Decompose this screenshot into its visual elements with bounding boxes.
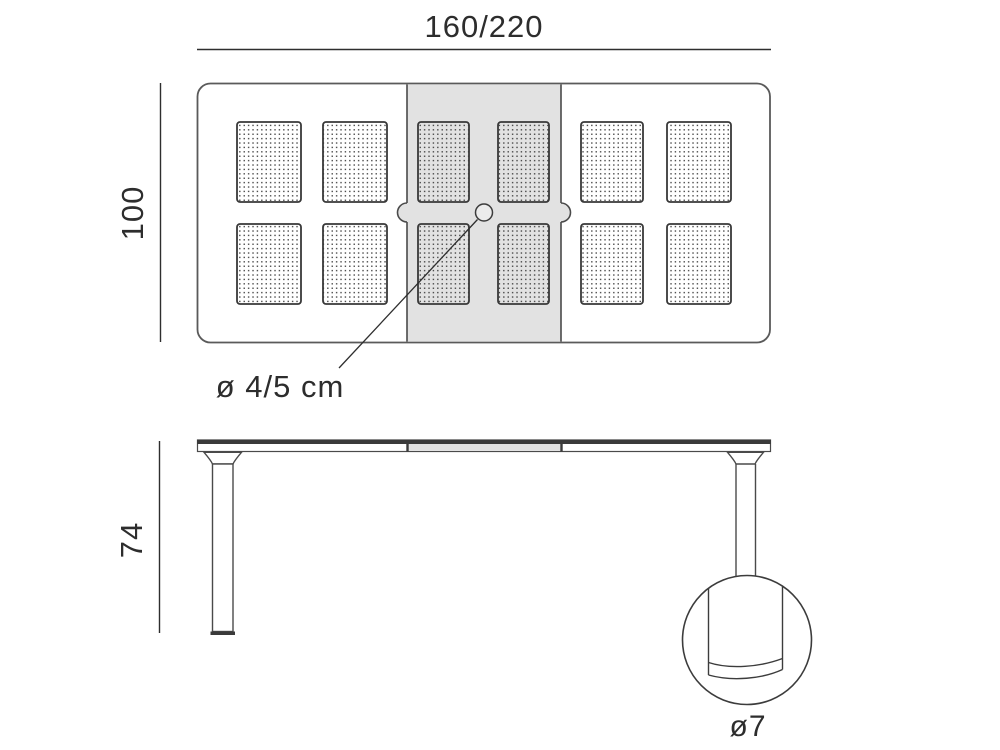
leg-detail-circle xyxy=(683,576,812,705)
leg-diameter-label: ø7 xyxy=(729,710,766,744)
hole-diameter-label: ø 4/5 cm xyxy=(216,369,345,405)
panel xyxy=(323,224,387,304)
panel xyxy=(498,122,549,202)
width-dimension-label: 160/220 xyxy=(424,9,543,45)
panel xyxy=(237,224,301,304)
panel xyxy=(581,224,643,304)
panel xyxy=(498,224,549,304)
panel xyxy=(323,122,387,202)
left-leg-shaft xyxy=(213,464,234,632)
technical-drawing xyxy=(0,0,1000,750)
panel xyxy=(667,122,731,202)
panel xyxy=(667,224,731,304)
panel xyxy=(237,122,301,202)
depth-dimension-label: 100 xyxy=(115,186,151,241)
right-leg-mount xyxy=(728,452,764,464)
table-hole xyxy=(476,204,493,221)
tabletop-edge xyxy=(197,440,771,445)
left-leg-mount xyxy=(204,452,242,464)
height-dimension-label: 74 xyxy=(114,522,150,558)
top-view-drawing xyxy=(198,84,771,369)
dimension-diagram: 160/220 100 74 ø 4/5 cm ø7 xyxy=(0,0,1000,750)
left-leg-foot xyxy=(211,632,236,636)
right-leg xyxy=(728,452,764,576)
panel xyxy=(418,122,469,202)
panel xyxy=(581,122,643,202)
tabletop-leaf-segment xyxy=(407,444,561,451)
side-view-drawing xyxy=(197,440,812,705)
left-leg xyxy=(204,452,242,635)
